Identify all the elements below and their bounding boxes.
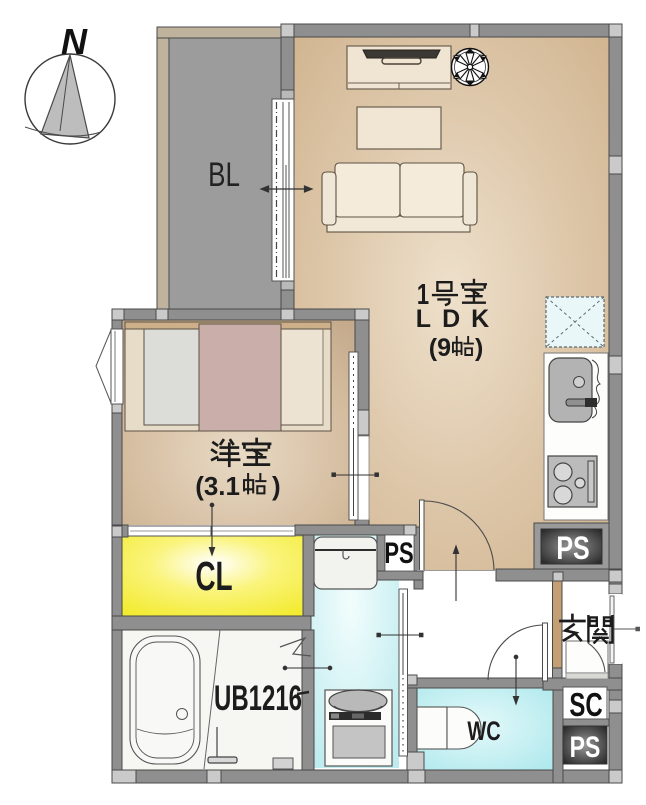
svg-text:PS: PS	[570, 730, 601, 764]
svg-text:PS: PS	[556, 531, 589, 567]
svg-text:CL: CL	[195, 554, 232, 599]
svg-text:SC: SC	[569, 687, 602, 724]
svg-text:(9: (9	[429, 334, 451, 362]
svg-text:PS: PS	[384, 536, 413, 570]
svg-text:): )	[475, 334, 483, 362]
svg-text:BL: BL	[208, 155, 240, 193]
svg-text:LDK: LDK	[416, 305, 500, 333]
svg-text:): )	[272, 471, 281, 501]
svg-text:UB1216: UB1216	[214, 680, 302, 718]
svg-text:(3.1: (3.1	[195, 471, 240, 501]
svg-text:N: N	[61, 21, 88, 62]
svg-text:WC: WC	[467, 716, 500, 747]
